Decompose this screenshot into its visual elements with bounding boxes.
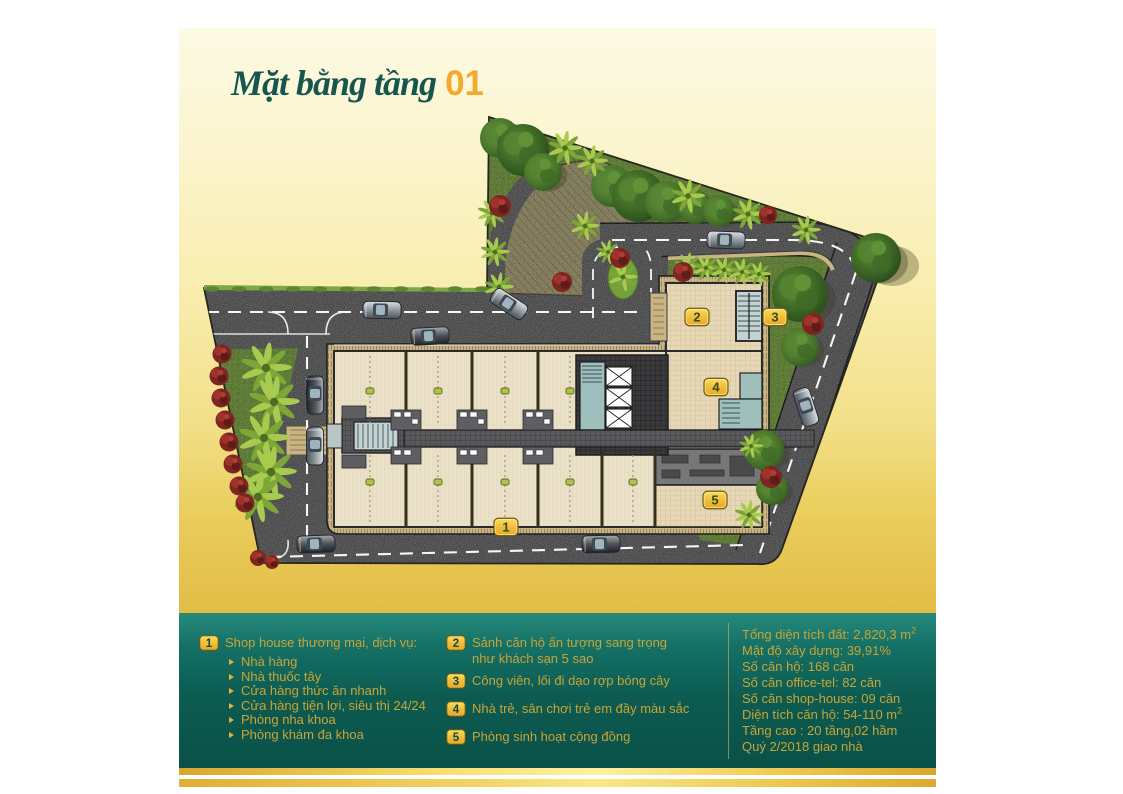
svg-text:3: 3 xyxy=(771,310,778,325)
svg-text:3: 3 xyxy=(453,676,459,688)
svg-text:5: 5 xyxy=(711,493,718,508)
svg-text:4: 4 xyxy=(712,380,720,395)
svg-text:2: 2 xyxy=(693,310,700,325)
svg-text:2: 2 xyxy=(453,638,459,650)
svg-text:1: 1 xyxy=(206,638,213,650)
svg-text:4: 4 xyxy=(453,704,460,716)
svg-text:1: 1 xyxy=(502,520,509,535)
svg-text:5: 5 xyxy=(453,732,460,744)
